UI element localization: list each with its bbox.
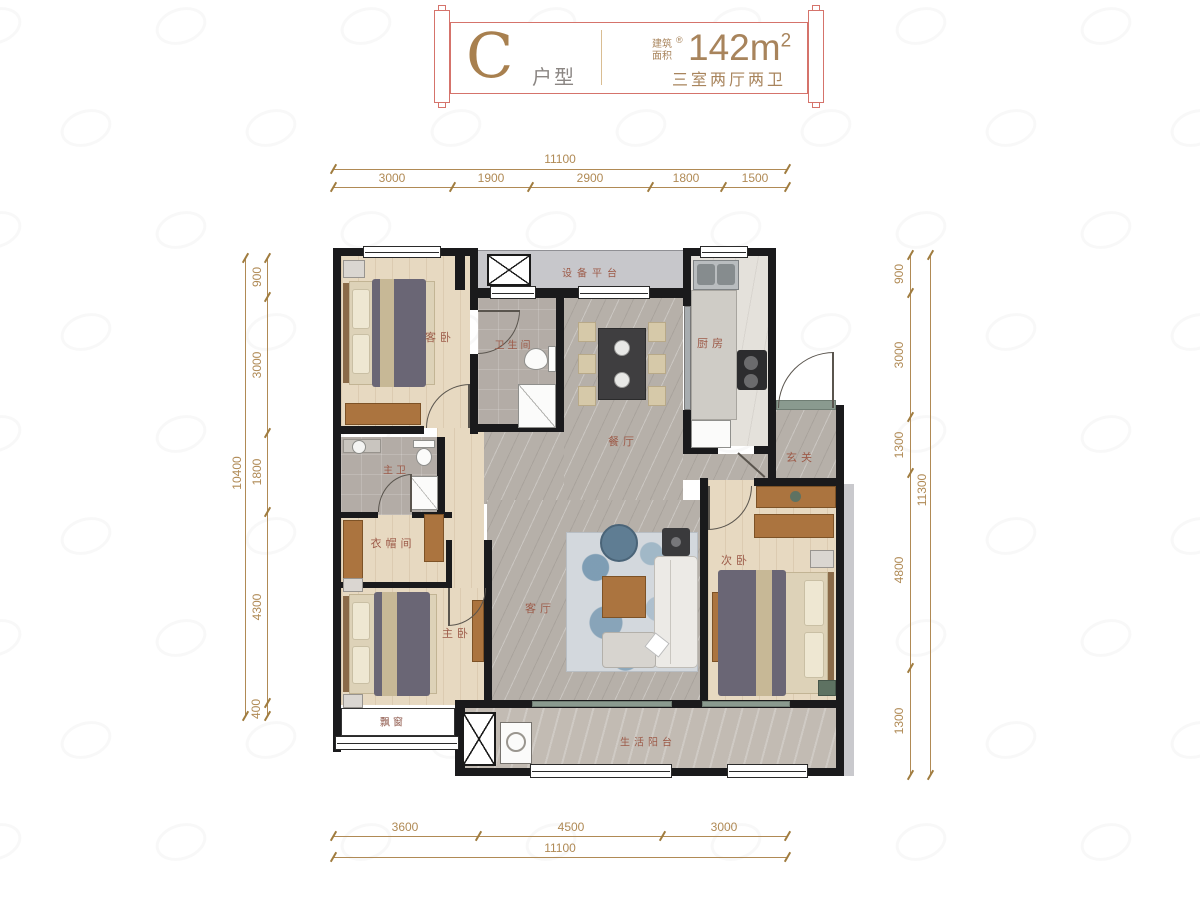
watermark-icon bbox=[151, 205, 212, 255]
room-label-kitchen: 厨房 bbox=[697, 335, 727, 351]
dim-seg: 1500 bbox=[725, 171, 785, 185]
banner-left-roller bbox=[434, 10, 450, 103]
master-bed-pillow bbox=[352, 646, 370, 684]
dining-chair bbox=[578, 354, 596, 374]
balcony-window bbox=[530, 764, 672, 778]
dim-tick bbox=[784, 831, 791, 842]
watermark-icon bbox=[56, 103, 117, 153]
wardrobe bbox=[343, 520, 363, 584]
dim-seg: 900 bbox=[892, 244, 906, 304]
banner-right-knob-top bbox=[812, 5, 820, 11]
stove-burner bbox=[744, 374, 758, 388]
dim-tick bbox=[784, 852, 791, 863]
dim-seg: 900 bbox=[250, 247, 264, 307]
banner-right-knob-bottom bbox=[812, 102, 820, 108]
watermark-icon bbox=[1076, 613, 1137, 663]
window bbox=[700, 246, 748, 258]
watermark-icon bbox=[0, 205, 26, 255]
second-bed-pillow bbox=[804, 632, 824, 678]
dim-total-bottom: 11100 bbox=[530, 841, 590, 855]
kitchen-sink-basin bbox=[717, 264, 735, 285]
dining-chair bbox=[648, 386, 666, 406]
shaft-hatch-icon bbox=[462, 712, 496, 766]
wall bbox=[836, 405, 844, 776]
dim-seg: 3000 bbox=[892, 325, 906, 385]
balcony-threshold bbox=[532, 701, 672, 707]
unit-type-letter: C bbox=[466, 26, 513, 86]
watermark-icon bbox=[336, 1, 397, 51]
dim-seg: 4500 bbox=[541, 820, 601, 834]
guest-bedroom-door-leaf bbox=[468, 384, 470, 428]
dining-table bbox=[598, 328, 646, 400]
room-label-master-bath: 主卫 bbox=[383, 462, 409, 477]
dim-tick bbox=[927, 770, 934, 781]
area-prefix-line1: 建筑 bbox=[652, 39, 672, 51]
dim-seg: 3600 bbox=[375, 820, 435, 834]
entrance-door-leaf bbox=[832, 352, 834, 408]
watermark-icon bbox=[891, 817, 952, 867]
window bbox=[578, 286, 650, 299]
watermark-icon bbox=[981, 307, 1042, 357]
watermark-icon bbox=[1166, 307, 1200, 357]
watermark-icon bbox=[521, 205, 582, 255]
watermark-icon bbox=[981, 103, 1042, 153]
room-label-bathroom: 卫生间 bbox=[495, 337, 534, 352]
coffee-table bbox=[602, 576, 646, 618]
wall bbox=[484, 540, 492, 708]
second-bed-runner bbox=[756, 570, 772, 696]
area-prefix: 建筑 面积 bbox=[652, 39, 672, 63]
wall bbox=[333, 248, 341, 740]
watermark-icon bbox=[796, 103, 857, 153]
master-bed-pillow bbox=[352, 602, 370, 640]
dining-plate bbox=[614, 340, 630, 356]
dim-seg: 1800 bbox=[250, 442, 264, 502]
dining-chair bbox=[648, 322, 666, 342]
sofa-cushion-line bbox=[670, 560, 671, 664]
dim-seg: 3000 bbox=[250, 335, 264, 395]
watermark-icon bbox=[1076, 409, 1137, 459]
dim-seg: 1300 bbox=[892, 691, 906, 751]
entry-floor bbox=[776, 410, 836, 484]
area-number: 142m bbox=[688, 27, 781, 68]
kitchen-sink-basin bbox=[697, 264, 715, 285]
dim-line bbox=[245, 258, 246, 716]
wall bbox=[700, 478, 708, 708]
washing-machine-door bbox=[506, 732, 526, 752]
banner-left-knob-bottom bbox=[438, 102, 446, 108]
bath-sink-icon bbox=[352, 440, 366, 454]
room-label-closet: 衣帽间 bbox=[371, 535, 416, 551]
dim-seg: 2900 bbox=[560, 171, 620, 185]
watermark-icon bbox=[0, 1, 26, 51]
watermark-icon bbox=[891, 1, 952, 51]
toilet-bowl bbox=[416, 448, 432, 466]
registered-icon: ® bbox=[676, 35, 683, 45]
platform-hatch-icon bbox=[487, 254, 531, 286]
balcony-threshold bbox=[702, 701, 790, 707]
watermark-icon bbox=[1076, 1, 1137, 51]
wall bbox=[470, 354, 478, 428]
wall bbox=[455, 248, 465, 290]
dim-tick bbox=[907, 770, 914, 781]
watermark-icon bbox=[981, 511, 1042, 561]
dim-line bbox=[333, 857, 787, 858]
area-value: 142m2 bbox=[688, 27, 791, 69]
wall bbox=[341, 426, 424, 434]
wall bbox=[768, 408, 776, 484]
watermark-icon bbox=[981, 715, 1042, 765]
guest-desk bbox=[345, 403, 421, 425]
watermark-icon bbox=[1166, 103, 1200, 153]
wardrobe bbox=[754, 514, 834, 538]
wall bbox=[470, 426, 478, 434]
dim-line bbox=[333, 169, 787, 170]
room-label-dining: 餐厅 bbox=[608, 433, 638, 449]
second-bedroom-door-leaf bbox=[708, 486, 710, 530]
master-bath-door-leaf bbox=[410, 474, 412, 512]
wall bbox=[754, 478, 843, 486]
nightstand bbox=[810, 550, 834, 568]
wall bbox=[341, 512, 378, 518]
banner-divider bbox=[601, 30, 602, 85]
entrance-door-arc bbox=[778, 352, 834, 408]
watermark-icon bbox=[611, 103, 672, 153]
room-label-master-bedroom: 主卧 bbox=[442, 625, 472, 641]
watermark-icon bbox=[56, 715, 117, 765]
guest-bed-runner bbox=[380, 279, 394, 387]
dining-plate bbox=[614, 372, 630, 388]
kitchen-sliding-glass bbox=[684, 306, 691, 410]
watermark-icon bbox=[1166, 715, 1200, 765]
area-prefix-line2: 面积 bbox=[652, 51, 672, 63]
watermark-icon bbox=[426, 103, 487, 153]
wall bbox=[556, 288, 564, 430]
dim-total-right: 11300 bbox=[915, 460, 929, 520]
dark-side-table-dot bbox=[671, 537, 681, 547]
dim-seg: 4800 bbox=[892, 540, 906, 600]
banner-left-knob-top bbox=[438, 5, 446, 11]
watermark-icon bbox=[1166, 511, 1200, 561]
second-bed-pillow bbox=[804, 580, 824, 626]
round-side-table bbox=[600, 524, 638, 562]
dining-chair bbox=[578, 386, 596, 406]
room-label-second-bedroom: 次卧 bbox=[721, 552, 751, 568]
balcony-window bbox=[727, 764, 808, 778]
watermark-icon bbox=[151, 1, 212, 51]
room-label-entry: 玄关 bbox=[786, 449, 816, 465]
watermark-icon bbox=[151, 817, 212, 867]
watermark-icon bbox=[0, 817, 26, 867]
watermark-icon bbox=[0, 613, 26, 663]
layout-spec: 三室两厅两卫 bbox=[672, 66, 786, 90]
watermark-icon bbox=[796, 307, 857, 357]
plant-box-icon bbox=[818, 680, 836, 696]
shower-tray bbox=[518, 384, 556, 428]
room-label-bay-window: 飘窗 bbox=[380, 714, 406, 729]
dim-line bbox=[930, 255, 931, 775]
unit-type-suffix: 户型 bbox=[532, 61, 576, 90]
dim-total-left: 10400 bbox=[230, 443, 244, 503]
watermark-icon bbox=[0, 409, 26, 459]
nightstand bbox=[343, 694, 363, 708]
wardrobe bbox=[424, 514, 444, 562]
window bbox=[363, 246, 441, 258]
hall-marble-floor bbox=[478, 430, 564, 504]
dim-seg: 3000 bbox=[362, 171, 422, 185]
wall bbox=[470, 256, 478, 310]
watermark-icon bbox=[891, 613, 952, 663]
banner-right-roller bbox=[808, 10, 824, 103]
kitchen-counter bbox=[691, 290, 737, 420]
area-exponent: 2 bbox=[781, 31, 792, 52]
bathroom-door-leaf bbox=[478, 310, 520, 312]
room-label-balcony: 生活阳台 bbox=[620, 734, 676, 749]
watermark-icon bbox=[241, 511, 302, 561]
guest-nightstand bbox=[343, 260, 365, 278]
dining-chair bbox=[648, 354, 666, 374]
dim-seg: 1900 bbox=[461, 171, 521, 185]
guest-bed-pillow bbox=[352, 334, 370, 374]
shower-tray bbox=[410, 476, 438, 510]
dim-seg: 1300 bbox=[892, 415, 906, 475]
dim-line bbox=[333, 187, 787, 188]
watermark-icon bbox=[151, 409, 212, 459]
dim-line bbox=[910, 255, 911, 775]
dim-total-top: 11100 bbox=[530, 152, 590, 166]
kitchen-cabinet bbox=[691, 420, 731, 448]
cabinet-plant-icon bbox=[790, 491, 801, 502]
dim-tick bbox=[264, 711, 271, 722]
room-label-guest-bedroom: 客卧 bbox=[425, 329, 455, 345]
floorplan-page: C 户型 建筑 面积 ® 142m2 三室两厅两卫 11100 3000 190… bbox=[0, 0, 1200, 900]
watermark-icon bbox=[56, 511, 117, 561]
right-pilaster bbox=[844, 484, 854, 776]
watermark-icon bbox=[241, 103, 302, 153]
watermark-icon bbox=[1076, 817, 1137, 867]
window bbox=[490, 286, 536, 299]
stove-burner bbox=[744, 356, 758, 370]
watermark-icon bbox=[1076, 205, 1137, 255]
toilet-icon bbox=[413, 440, 435, 448]
wall bbox=[446, 540, 452, 588]
master-bedroom-door-leaf bbox=[448, 588, 450, 626]
second-bed-blanket bbox=[718, 570, 786, 696]
room-label-living: 客厅 bbox=[525, 600, 555, 616]
dim-line bbox=[267, 258, 268, 716]
nightstand bbox=[343, 578, 363, 592]
dim-seg: 4300 bbox=[250, 577, 264, 637]
dim-line bbox=[333, 836, 787, 837]
dim-seg: 1800 bbox=[656, 171, 716, 185]
guest-bed-pillow bbox=[352, 289, 370, 329]
master-bed-runner bbox=[382, 592, 397, 696]
watermark-icon bbox=[56, 307, 117, 357]
watermark-icon bbox=[151, 613, 212, 663]
wall bbox=[437, 437, 445, 512]
wall bbox=[768, 248, 776, 408]
toilet-tank bbox=[548, 346, 556, 372]
dim-seg: 400 bbox=[249, 679, 263, 739]
second-bed-headboard bbox=[828, 572, 834, 694]
dim-seg: 3000 bbox=[694, 820, 754, 834]
dining-chair bbox=[578, 322, 596, 342]
bay-window-glass bbox=[335, 736, 459, 750]
room-label-equipment-platform: 设备平台 bbox=[562, 265, 622, 280]
wall bbox=[683, 256, 691, 306]
